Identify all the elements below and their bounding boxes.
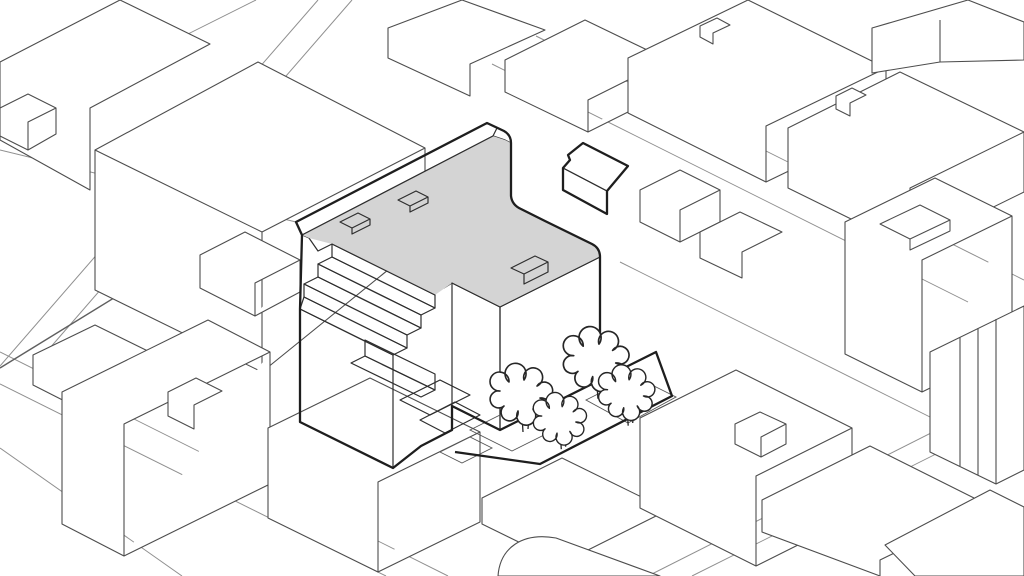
drawing-canvas (0, 0, 1024, 576)
context-building (930, 306, 1024, 484)
annex-wall-sw (563, 168, 607, 214)
annex-building (563, 143, 628, 214)
context-building (872, 0, 1024, 73)
tree (533, 392, 586, 449)
facade-sw-tower (452, 283, 500, 430)
annex-outline (563, 143, 628, 214)
axonometric-site-plan (0, 0, 1024, 576)
street-trees (490, 327, 655, 450)
